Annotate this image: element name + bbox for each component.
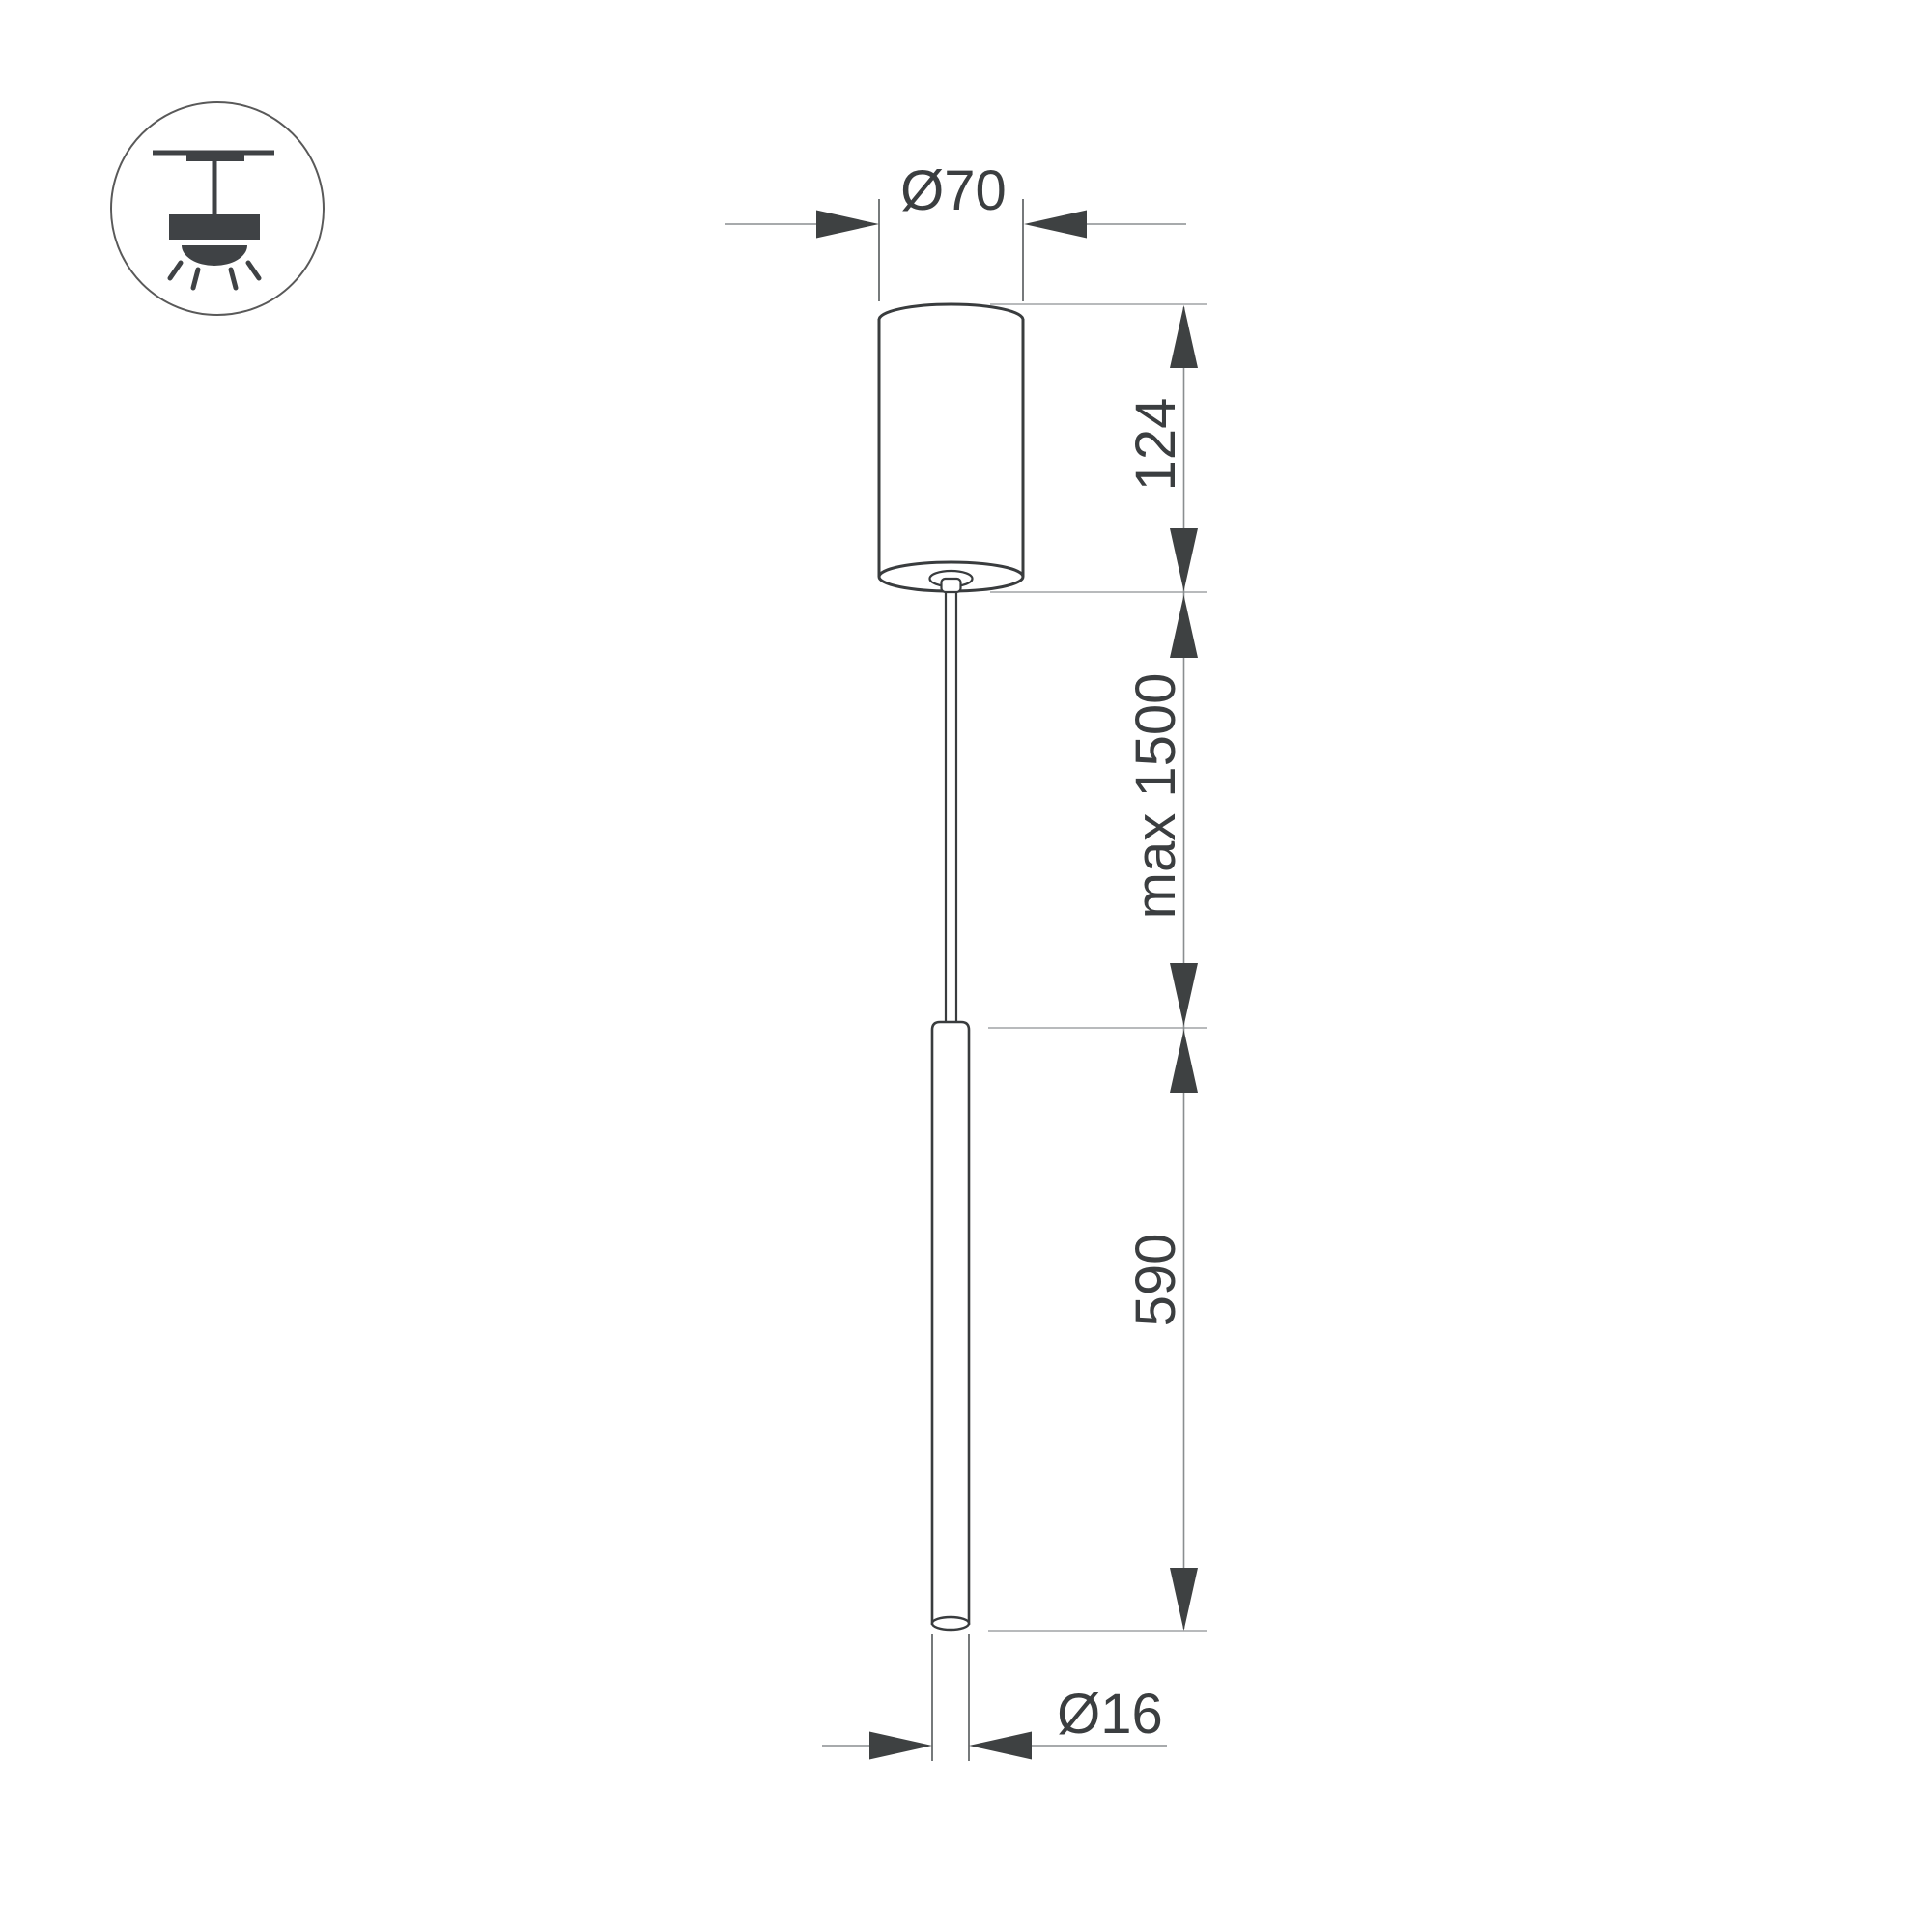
canopy-top-edge: [879, 304, 1023, 320]
lamp-drawing: [879, 304, 1023, 1630]
arrowhead-right-icon: [816, 211, 879, 239]
arrowhead-up-icon: [1170, 1030, 1198, 1093]
arrowhead-left-icon: [969, 1732, 1032, 1760]
dim-tube-length: 590: [1124, 1030, 1198, 1631]
light-ray-icon: [193, 270, 198, 288]
dim-label-suspension-length: max 1500: [1124, 673, 1187, 920]
dim-canopy-height: 124: [1124, 305, 1198, 591]
arrowhead-right-icon: [869, 1732, 932, 1760]
light-ray-icon: [231, 270, 236, 288]
arrowhead-down-icon: [1170, 963, 1198, 1026]
dim-label-tube-length: 590: [1124, 1234, 1187, 1327]
icon-light-dome: [182, 245, 247, 266]
arrowhead-up-icon: [1170, 595, 1198, 658]
tube-body: [932, 1022, 969, 1625]
icon-suspension-rod: [213, 161, 217, 214]
dim-suspension-length: max 1500: [1124, 595, 1198, 1026]
icon-lamp-body: [169, 214, 260, 240]
cable-gland: [942, 579, 961, 592]
lamp-tube: [932, 1022, 969, 1630]
arrowhead-down-icon: [1170, 1568, 1198, 1631]
dim-label-canopy-height: 124: [1124, 398, 1187, 492]
icon-canopy-bar: [186, 153, 244, 161]
canopy: [879, 304, 1023, 592]
arrowhead-down-icon: [1170, 528, 1198, 591]
icon-circle-border: [111, 102, 324, 315]
dim-label-tube-diameter: Ø16: [1057, 1683, 1163, 1746]
ceiling-pendant-mount-icon: [111, 102, 324, 315]
suspension-cable: [946, 592, 956, 1022]
dim-tube-diameter: Ø16: [822, 1634, 1167, 1761]
drawing-canvas: Ø70 124 max 1500: [0, 0, 1932, 1932]
pendant-lamp-dimension-drawing: Ø70 124 max 1500: [0, 0, 1932, 1932]
tube-bottom-opening: [932, 1617, 969, 1630]
vertical-dimension-chain: 124 max 1500 590: [988, 304, 1207, 1631]
arrowhead-up-icon: [1170, 305, 1198, 368]
arrowhead-left-icon: [1024, 211, 1087, 239]
light-ray-icon: [170, 263, 181, 278]
light-ray-icon: [248, 263, 259, 278]
icon-light-rays: [170, 263, 259, 288]
dim-canopy-diameter: Ø70: [725, 159, 1186, 301]
dim-label-canopy-diameter: Ø70: [900, 159, 1007, 222]
